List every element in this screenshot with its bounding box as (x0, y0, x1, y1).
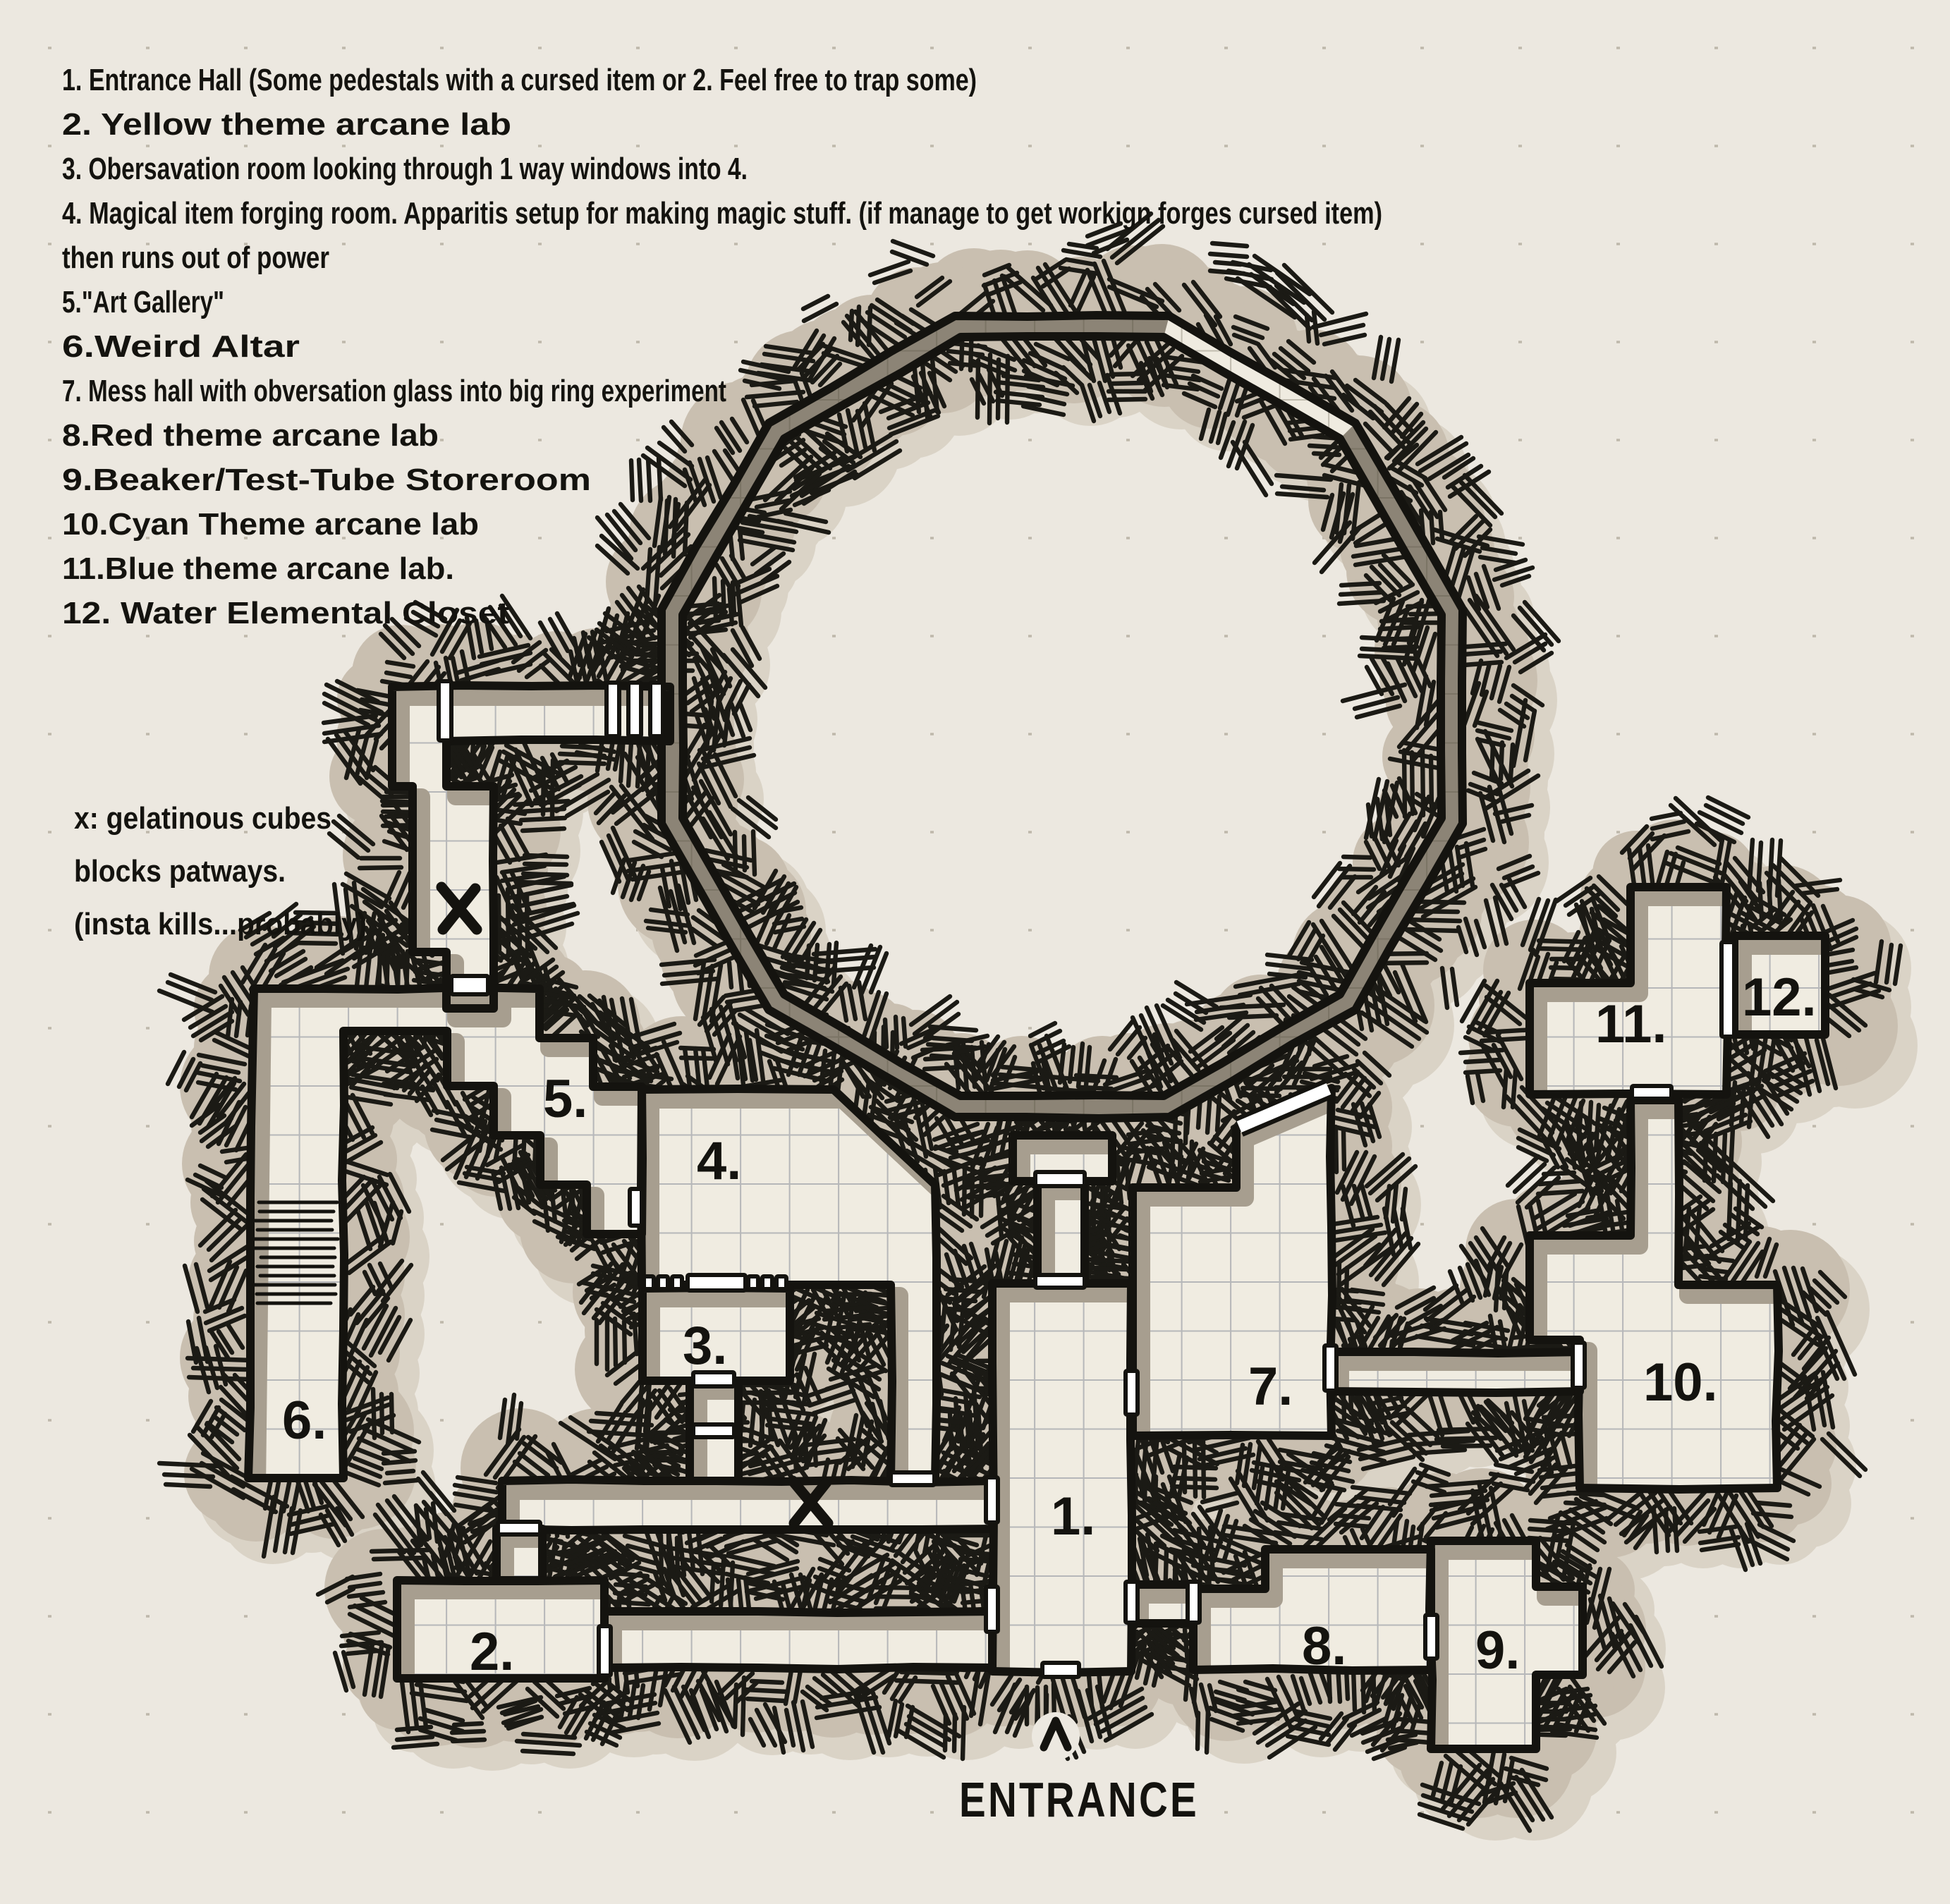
svg-text:6.: 6. (282, 1391, 327, 1451)
svg-text:8.: 8. (1302, 1616, 1346, 1676)
svg-text:4. Magical item forging room.: 4. Magical item forging room. Apparitis … (62, 196, 1382, 231)
svg-text:12.: 12. (1742, 968, 1817, 1027)
svg-text:10.Cyan Theme arcane lab: 10.Cyan Theme arcane lab (62, 507, 479, 542)
svg-text:9.Beaker/Test-Tube Storeroom: 9.Beaker/Test-Tube Storeroom (62, 463, 591, 497)
svg-text:11.Blue theme arcane lab.: 11.Blue theme arcane lab. (62, 551, 454, 586)
svg-text:1. Entrance Hall (Some pedesta: 1. Entrance Hall (Some pedestals with a … (62, 63, 977, 97)
svg-text:3.: 3. (683, 1316, 727, 1376)
svg-text:(insta kills...probably): (insta kills...probably) (74, 907, 367, 941)
svg-text:9.: 9. (1475, 1621, 1520, 1680)
svg-text:6.Weird Altar: 6.Weird Altar (62, 329, 300, 364)
svg-text:1.: 1. (1051, 1487, 1095, 1546)
svg-text:11.: 11. (1595, 994, 1666, 1054)
svg-text:blocks patways.: blocks patways. (74, 854, 286, 889)
svg-text:2.: 2. (470, 1622, 514, 1682)
svg-text:then runs out of power: then runs out of power (62, 240, 329, 275)
svg-text:10.: 10. (1643, 1353, 1718, 1412)
svg-text:ENTRANCE: ENTRANCE (959, 1772, 1199, 1827)
svg-text:12. Water Elemental Closet: 12. Water Elemental Closet (62, 596, 509, 630)
svg-text:3. Obersavation room looking t: 3. Obersavation room looking through 1 w… (62, 152, 748, 186)
svg-text:5.: 5. (543, 1069, 587, 1129)
svg-text:4.: 4. (697, 1131, 741, 1191)
svg-text:5."Art Gallery": 5."Art Gallery" (62, 285, 224, 319)
svg-text:8.Red theme arcane lab: 8.Red theme arcane lab (62, 418, 439, 453)
svg-text:2. Yellow theme arcane lab: 2. Yellow theme arcane lab (62, 107, 511, 142)
svg-text:7.: 7. (1248, 1357, 1293, 1417)
svg-text:7. Mess hall with obversation: 7. Mess hall with obversation glass into… (62, 374, 726, 408)
svg-text:x: gelatinous cubes: x: gelatinous cubes (74, 801, 331, 836)
